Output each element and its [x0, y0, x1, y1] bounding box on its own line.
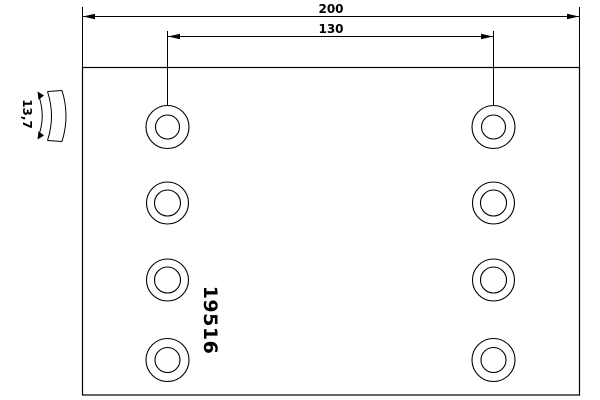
hole-inner-circle — [481, 348, 506, 373]
section-cap-bottom — [48, 141, 63, 142]
hole-outer-circle — [472, 106, 515, 149]
hole-row3-right — [473, 259, 515, 301]
arrowhead-left-icon — [168, 34, 180, 39]
hole-inner-circle — [155, 190, 181, 216]
technical-drawing-canvas: 200 130 13,7 — [0, 0, 600, 400]
arrowhead-bottom-icon — [38, 131, 45, 139]
thickness-dimension-arc — [39, 95, 43, 136]
hole-row1-right — [472, 106, 515, 149]
hole-inner-circle — [155, 348, 180, 373]
hole-outer-circle — [146, 106, 189, 149]
hole-outer-circle — [147, 259, 189, 301]
arrowhead-right-icon — [481, 34, 493, 39]
hole-row2-left — [147, 182, 189, 224]
thickness-label: 13,7 — [20, 99, 34, 129]
hole-inner-circle — [481, 267, 507, 293]
thickness-section-indicator: 13,7 — [20, 91, 66, 142]
hole-inner-circle — [156, 115, 180, 139]
dimension-hole-spacing: 130 — [168, 22, 494, 106]
hole-row3-left — [147, 259, 189, 301]
overall-length-label: 200 — [318, 2, 343, 16]
hole-outer-circle — [146, 339, 189, 382]
brake-lining-drawing: 200 130 13,7 — [0, 0, 600, 400]
section-cap-top — [48, 91, 63, 92]
arrowhead-top-icon — [38, 92, 45, 100]
part-outline — [83, 68, 580, 396]
arrowhead-left-icon — [83, 14, 95, 19]
hole-inner-circle — [482, 115, 506, 139]
hole-spacing-label: 130 — [318, 22, 343, 36]
hole-inner-circle — [481, 190, 507, 216]
hole-row4-left — [146, 339, 189, 382]
hole-outer-circle — [473, 182, 515, 224]
hole-outer-circle — [472, 339, 515, 382]
section-arc-outer — [62, 91, 66, 142]
hole-inner-circle — [155, 267, 181, 293]
section-arc-inner — [48, 92, 52, 141]
hole-row4-right — [472, 339, 515, 382]
part-number-label: 19516 — [199, 286, 221, 355]
hole-row2-right — [473, 182, 515, 224]
arrowhead-right-icon — [567, 14, 579, 19]
hole-outer-circle — [473, 259, 515, 301]
hole-row1-left — [146, 106, 189, 149]
hole-outer-circle — [147, 182, 189, 224]
